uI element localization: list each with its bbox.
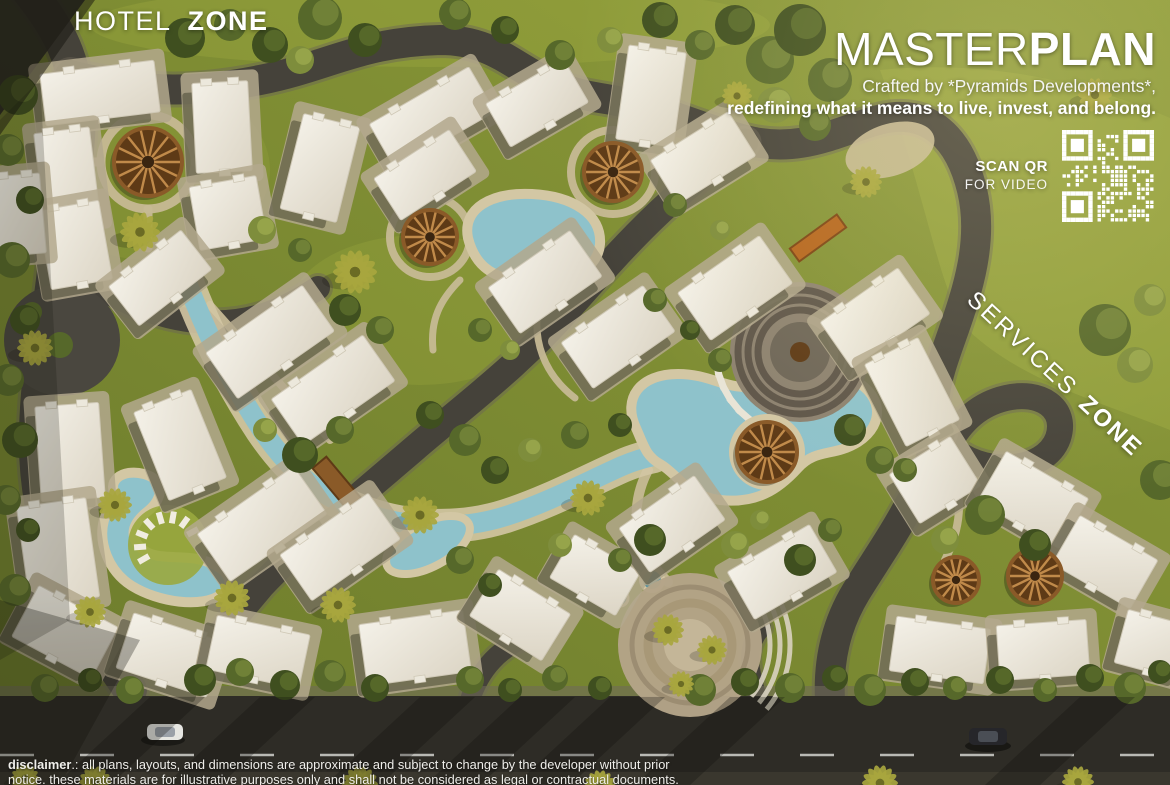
disclaimer-line1: disclaimer.: all plans, layouts, and dim… [8, 757, 783, 772]
page-title: MASTERPLAN [727, 26, 1156, 73]
page-title-bold: PLAN [1029, 23, 1156, 75]
scan-qr-line1: SCAN QR [965, 158, 1048, 177]
hotel-zone-label-light: HOTEL [74, 6, 172, 36]
pergola-wheel [110, 128, 182, 200]
scan-qr-line2: FOR VIDEO [965, 177, 1048, 194]
tagline: redefining what it means to live, invest… [727, 98, 1156, 119]
disclaimer-line2: notice. these materials are for illustra… [8, 772, 783, 785]
scan-qr-block: SCAN QR FOR VIDEO [965, 130, 1154, 222]
building [877, 604, 1004, 697]
pergola-wheel [929, 557, 979, 607]
car-dark [965, 728, 1011, 752]
disclaimer: disclaimer.: all plans, layouts, and dim… [8, 757, 783, 785]
crafted-by-line: Crafted by *Pyramids Developments*, [727, 76, 1156, 97]
pergola-wheel [399, 210, 457, 268]
masterplan-page: HOTELZONE MASTERPLAN Crafted by *Pyramid… [0, 0, 1170, 785]
qr-code [1062, 130, 1154, 222]
disclaimer-word: disclaimer [8, 757, 71, 772]
scan-qr-caption: SCAN QR FOR VIDEO [965, 158, 1048, 194]
page-title-light: MASTER [834, 23, 1029, 75]
hotel-zone-label: HOTELZONE [74, 6, 269, 37]
hotel-zone-label-bold: ZONE [188, 6, 269, 36]
disclaimer-rest1: .: all plans, layouts, and dimensions ar… [71, 757, 669, 772]
masterplan-header: MASTERPLAN Crafted by *Pyramids Developm… [727, 26, 1156, 119]
